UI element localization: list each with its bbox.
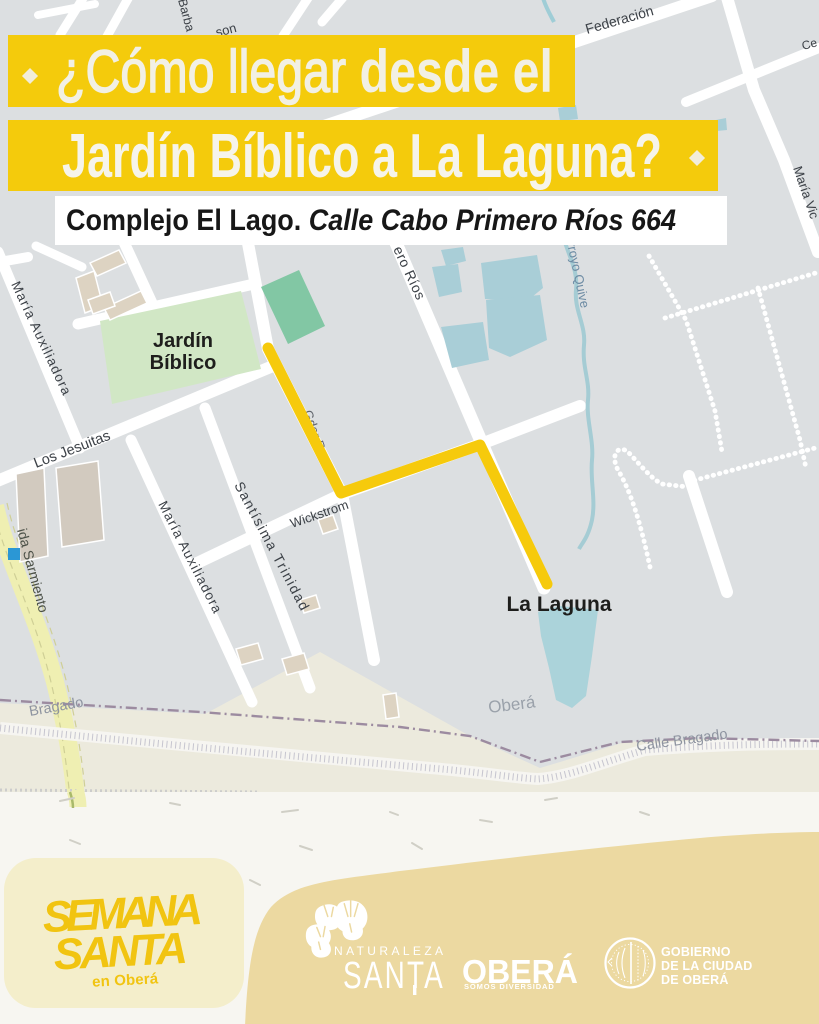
svg-text:Complejo El Lago. Calle Cabo P: Complejo El Lago. Calle Cabo Primero Río… xyxy=(66,204,676,237)
svg-text:GOBIERNO: GOBIERNO xyxy=(661,945,731,959)
svg-text:DE LA CIUDAD: DE LA CIUDAD xyxy=(661,959,753,973)
svg-text:Jardín: Jardín xyxy=(153,330,213,352)
svg-text:Bíblico: Bíblico xyxy=(150,352,217,374)
svg-text:SOMOS DIVERSIDAD: SOMOS DIVERSIDAD xyxy=(464,982,555,991)
svg-text:en Oberá: en Oberá xyxy=(92,970,159,990)
svg-text:La Laguna: La Laguna xyxy=(506,593,611,616)
svg-text:DE OBERÁ: DE OBERÁ xyxy=(661,972,729,987)
svg-text:Jardín Bíblico a La Laguna?: Jardín Bíblico a La Laguna? xyxy=(62,122,662,191)
svg-text:SANTA: SANTA xyxy=(343,955,445,997)
svg-text:¿Cómo llegar desde el: ¿Cómo llegar desde el xyxy=(56,38,553,105)
